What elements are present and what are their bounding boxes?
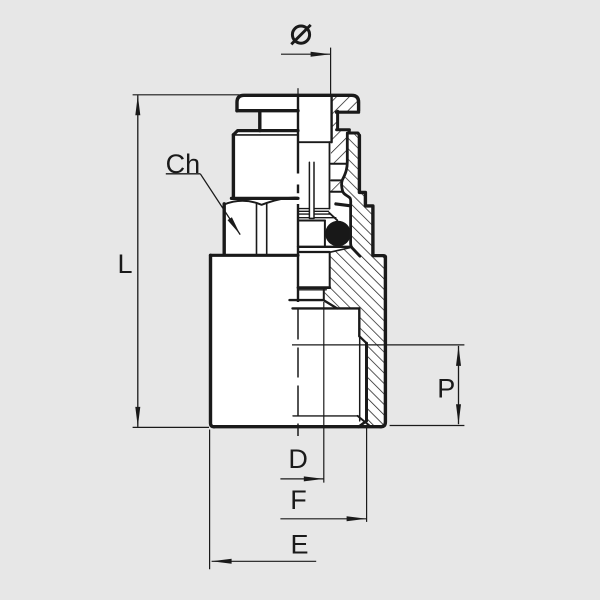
svg-text:F: F — [290, 485, 307, 515]
svg-text:L: L — [118, 249, 133, 279]
svg-text:D: D — [288, 444, 308, 474]
svg-text:E: E — [291, 529, 309, 559]
svg-text:P: P — [437, 373, 455, 403]
